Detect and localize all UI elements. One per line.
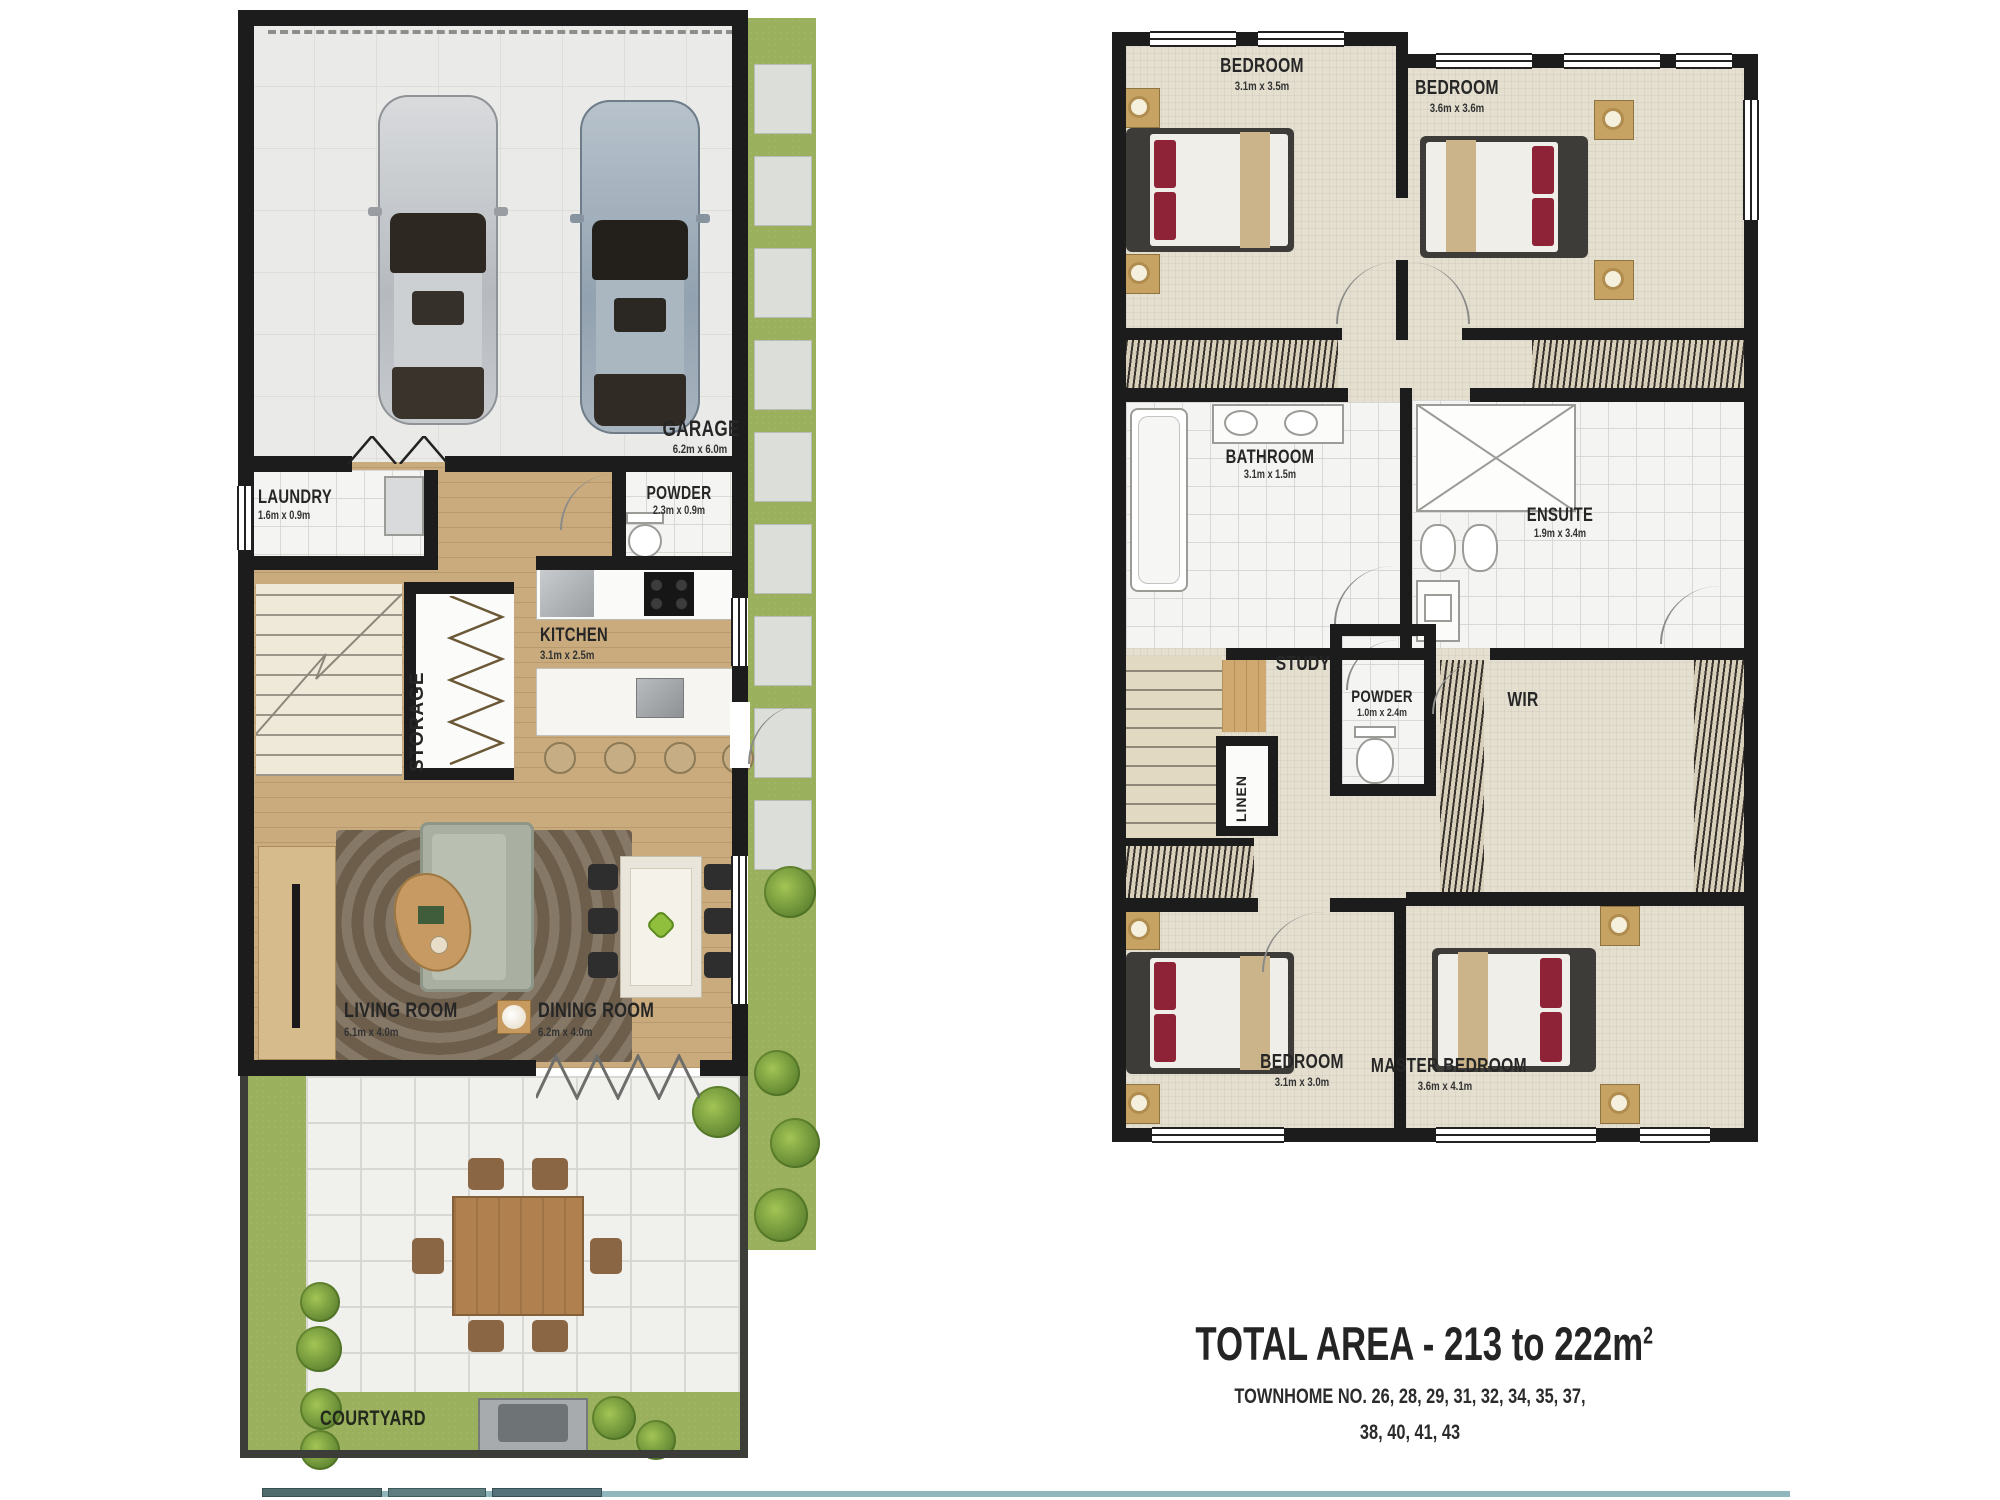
wall (1268, 736, 1278, 836)
bedside-lamp (1608, 1092, 1630, 1114)
wall (1216, 826, 1278, 836)
bathroom-label: BATHROOM (1215, 448, 1324, 467)
window (1258, 31, 1344, 47)
window (1564, 53, 1660, 69)
wall (1112, 32, 1126, 1142)
window (1640, 1127, 1710, 1143)
bed-pillow (1154, 192, 1176, 240)
bed-pillow (1532, 198, 1554, 246)
bedroom-tr-dims: 3.6m x 3.6m (1397, 102, 1517, 114)
wall (1400, 388, 1412, 660)
bed-pillow (1540, 958, 1562, 1008)
powder-upper-label: POWDER (1343, 688, 1421, 705)
wall (1406, 892, 1758, 906)
toilet (1420, 524, 1456, 572)
wall (1330, 624, 1436, 636)
bedside-lamp (1128, 262, 1150, 284)
wall (1394, 898, 1406, 1142)
robe-hatch (1122, 846, 1254, 898)
bedroom-bl-label: BEDROOM (1240, 1052, 1365, 1072)
upper-top-notch (1404, 20, 1764, 54)
wall (1396, 260, 1408, 340)
total-area-sup: 2 (1643, 1322, 1653, 1349)
townhome-numbers-line1: TOWNHOME NO. 26, 28, 29, 31, 32, 34, 35,… (1184, 1386, 1636, 1407)
bottom-strip-segment (262, 1488, 382, 1497)
wall (1216, 736, 1226, 836)
toilet (1462, 524, 1498, 572)
ensuite-label: ENSUITE (1505, 506, 1614, 525)
bed-pillow (1154, 962, 1176, 1010)
bottom-strip-segment (492, 1488, 602, 1497)
linen-label: LINEN (1234, 752, 1248, 822)
robe-hatch (1126, 340, 1338, 388)
bed-throw (1240, 132, 1270, 248)
upper-floor-plan: BEDROOM 3.1m x 3.5m BEDROOM 3.6m x 3.6m … (0, 0, 2000, 1500)
master-bedroom-dims: 3.6m x 4.1m (1369, 1080, 1521, 1092)
wall (1330, 784, 1436, 796)
window (1436, 1127, 1596, 1143)
wall (1112, 898, 1258, 912)
basin (1424, 594, 1452, 622)
bedside-lamp (1128, 1092, 1150, 1114)
bed-pillow (1154, 140, 1176, 188)
bedroom-tr-label: BEDROOM (1399, 78, 1516, 98)
bed-pillow (1540, 1012, 1562, 1062)
wall (1330, 624, 1342, 796)
toilet (1356, 738, 1394, 784)
basin (1224, 410, 1258, 436)
study-label: STUDY (1260, 654, 1346, 674)
ensuite-dims: 1.9m x 3.4m (1504, 529, 1616, 541)
wir-label: WIR (1480, 690, 1566, 710)
wall (1112, 328, 1342, 340)
basin (1284, 410, 1318, 436)
wall (1470, 388, 1758, 402)
townhome-numbers-line2: 38, 40, 41, 43 (1184, 1422, 1636, 1443)
bedroom-tl-dims: 3.1m x 3.5m (1198, 80, 1326, 92)
bed-throw (1458, 952, 1488, 1068)
bottom-strip-segment (388, 1488, 486, 1497)
robe-hatch (1532, 340, 1744, 388)
wall (1118, 838, 1254, 846)
toilet-cistern (1354, 726, 1396, 738)
bathroom-dims: 3.1m x 1.5m (1214, 470, 1326, 482)
window (1676, 53, 1732, 69)
bedroom-tl-label: BEDROOM (1200, 56, 1325, 76)
wall (1490, 648, 1758, 660)
bed-pillow (1154, 1014, 1176, 1062)
window (1436, 53, 1532, 69)
master-bedroom-label: MASTER BEDROOM (1371, 1056, 1519, 1076)
bathtub-inner (1138, 416, 1180, 584)
bedside-lamp (1602, 268, 1624, 290)
wall (1462, 328, 1758, 340)
window (1150, 31, 1236, 47)
window (1152, 1127, 1284, 1143)
bedroom-bl-dims: 3.1m x 3.0m (1238, 1076, 1366, 1088)
wall (1396, 46, 1408, 198)
powder-upper-dims: 1.0m x 2.4m (1342, 708, 1422, 719)
floor-plan-sheet: GARAGE 6.2m x 6.0m LAUNDRY 1.6m x 0.9m P… (0, 0, 2000, 1500)
bedside-lamp (1602, 108, 1624, 130)
window (1743, 100, 1759, 220)
total-area-text: TOTAL AREA - 213 to 222m2 (1195, 1320, 1624, 1367)
shower-cross (1416, 404, 1576, 512)
bed-pillow (1532, 146, 1554, 194)
total-area-main: TOTAL AREA - 213 to 222m (1195, 1317, 1643, 1370)
bedside-lamp (1608, 914, 1630, 936)
bed-throw (1446, 140, 1476, 252)
wall (1112, 388, 1348, 402)
bedside-lamp (1128, 918, 1150, 940)
bedside-lamp (1128, 96, 1150, 118)
wir-hatch (1694, 660, 1744, 892)
